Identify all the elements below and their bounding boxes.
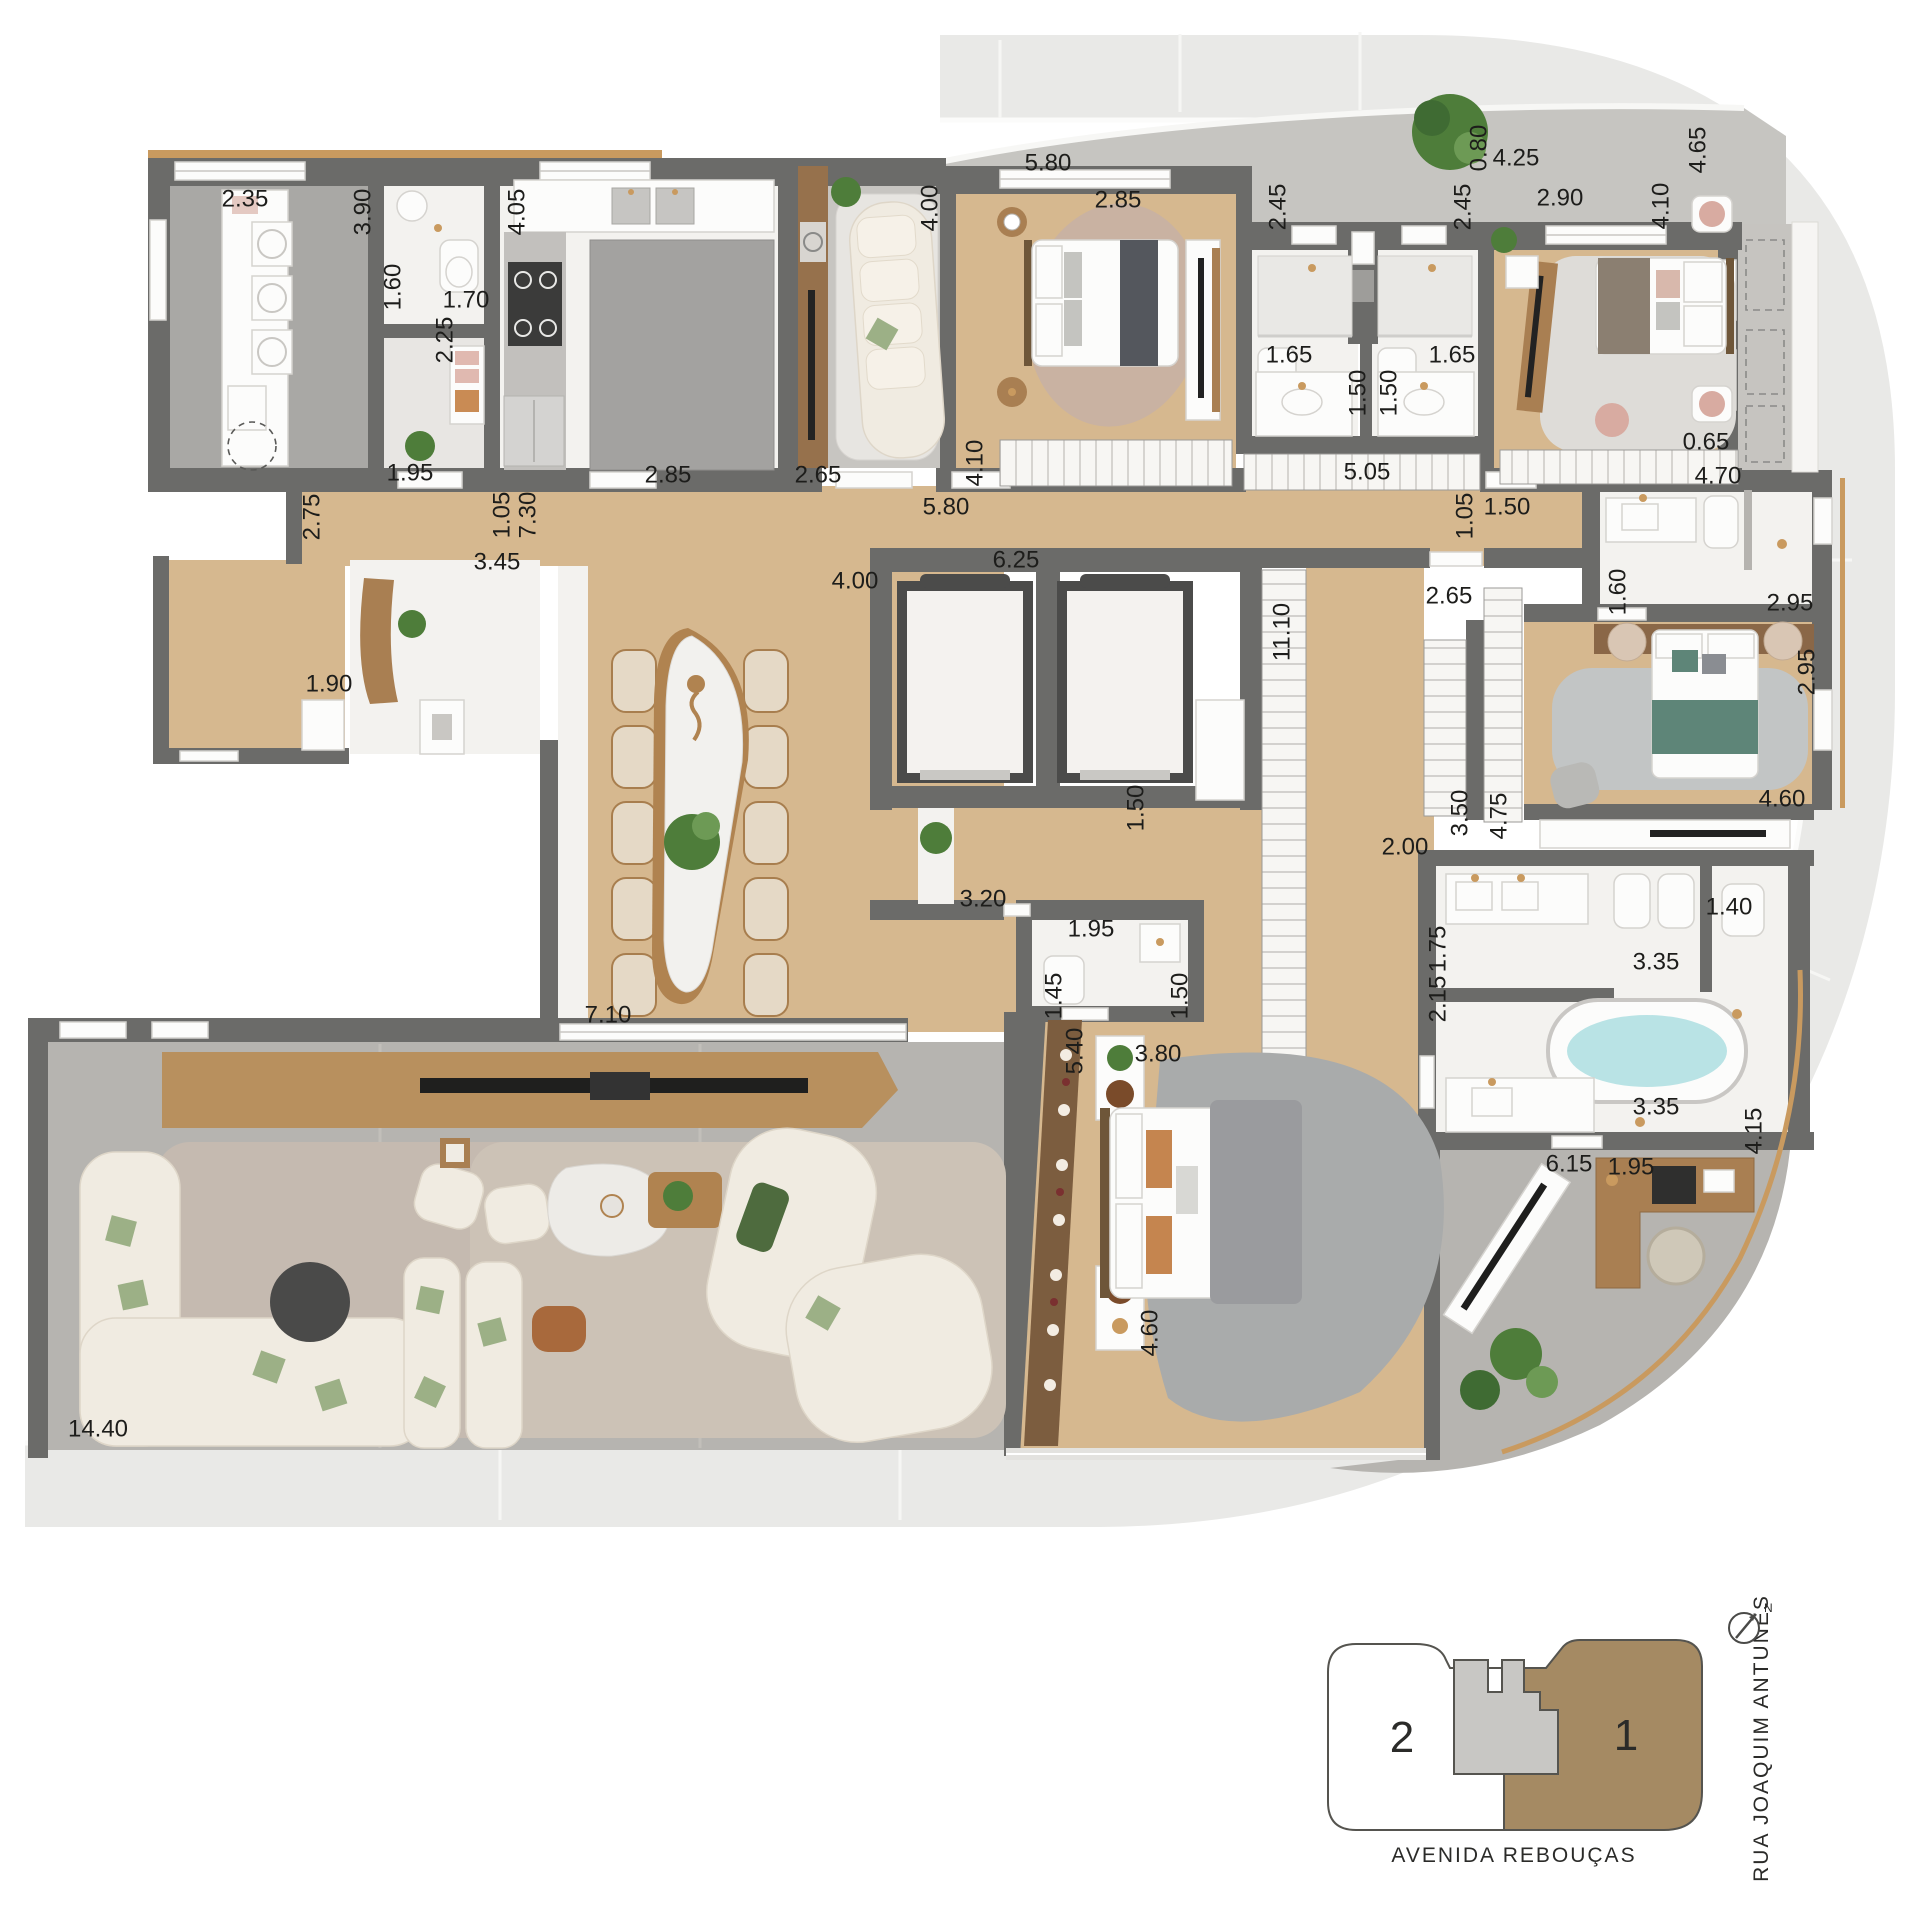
dimension-label: 1.65: [1266, 341, 1313, 368]
dimension-label: 6.15: [1546, 1150, 1593, 1177]
wc-toilet: [440, 240, 478, 292]
dimension-label: 4.15: [1740, 1108, 1767, 1155]
dark-ottoman: [270, 1262, 350, 1342]
nightstand: [1506, 256, 1538, 288]
dimension-label: 2.65: [1426, 582, 1473, 609]
dimension-label: 5.80: [1025, 149, 1072, 176]
dimension-label: 2.95: [1767, 589, 1814, 616]
core-niche: [1196, 700, 1244, 800]
dimension-label: 1.45: [1040, 973, 1067, 1020]
plant-icon: [1107, 1045, 1133, 1071]
plant-icon: [398, 610, 426, 638]
dimension-label: 7.30: [514, 492, 541, 539]
dimension-label: 5.80: [923, 493, 970, 520]
dimension-label: 4.10: [1647, 183, 1674, 230]
corridor-floor: [1306, 566, 1424, 816]
dimension-label: 1.60: [379, 264, 406, 311]
dimension-label: 2.45: [1264, 184, 1291, 231]
dimension-label: 1.50: [1484, 493, 1531, 520]
dimension-label: 1.50: [1375, 370, 1402, 417]
dimension-label: 1.40: [1706, 893, 1753, 920]
plant-icon: [1491, 227, 1517, 253]
laundry-room: [222, 190, 292, 470]
bedroom1-wardrobe: [1000, 440, 1232, 486]
elevator-2: [1062, 586, 1188, 778]
dimension-label: 4.60: [1759, 785, 1806, 812]
laptop: [1652, 1166, 1696, 1204]
dimension-label: 4.70: [1695, 462, 1742, 489]
dimension-label: 3.50: [1446, 790, 1473, 837]
wc-sink: [397, 191, 427, 221]
dimension-label: 14.40: [68, 1415, 128, 1442]
dimension-label: 1.50: [1344, 370, 1371, 417]
plant-icon: [920, 822, 952, 854]
dimension-label: 2.75: [298, 494, 325, 541]
vanity: [1446, 1078, 1594, 1132]
dining: [612, 628, 788, 1016]
dimension-label: 2.85: [1095, 186, 1142, 213]
dimension-label: 2.85: [645, 461, 692, 488]
dimension-label: 4.00: [916, 185, 943, 232]
marble-strip: [558, 566, 588, 1022]
dimension-label: 3.80: [1135, 1040, 1182, 1067]
living-terrace: [80, 1052, 1006, 1452]
dimension-label: 5.40: [1061, 1028, 1088, 1075]
plant-icon: [663, 1181, 693, 1211]
kitchen: [504, 180, 774, 470]
dimension-label: 4.00: [832, 567, 879, 594]
dimension-label: 4.10: [961, 440, 988, 487]
sectional-sofa: [80, 1318, 426, 1446]
dimension-label: 1.95: [1068, 915, 1115, 942]
tv-screen: [808, 290, 815, 440]
dimension-label: 0.65: [1683, 428, 1730, 455]
dimension-label: 1.90: [306, 670, 353, 697]
key-plan: 2 1 AVENIDA REBOUÇAS RUA JOAQUIM ANTUNES…: [1328, 1594, 1773, 1882]
dimension-label: 1.50: [1122, 785, 1149, 832]
ottoman: [1699, 391, 1725, 417]
floor-plan-drawing: 2.353.904.051.601.702.251.952.852.751.05…: [0, 0, 1920, 1920]
ottoman: [1699, 201, 1725, 227]
keyplan-unit1-label: 1: [1614, 1711, 1638, 1760]
floor-plan-page: 2.353.904.051.601.702.251.952.852.751.05…: [0, 0, 1920, 1920]
dimension-label: 2.65: [795, 461, 842, 488]
dimension-label: 3.90: [349, 189, 376, 236]
dimension-label: 3.45: [474, 548, 521, 575]
laundry-sink: [228, 386, 266, 430]
dimension-label: 4.65: [1684, 127, 1711, 174]
bed-throw: [1598, 258, 1650, 354]
plant-icon: [831, 177, 861, 207]
pouf: [1595, 403, 1629, 437]
plant-icon: [405, 431, 435, 461]
leather-pouf: [532, 1306, 586, 1352]
street-label-bottom: AVENIDA REBOUÇAS: [1391, 1844, 1636, 1867]
dimension-label: 4.75: [1485, 793, 1512, 840]
dimension-label: 3.35: [1633, 948, 1680, 975]
dimension-label: 1.95: [1608, 1153, 1655, 1180]
dimension-label: 1.95: [387, 459, 434, 486]
tv-screen: [1650, 830, 1766, 837]
closet-475: [1484, 588, 1522, 822]
keyplan-unit2-label: 2: [1390, 1713, 1414, 1762]
closet-350: [1424, 640, 1466, 816]
dimension-label: 1.60: [1604, 569, 1631, 616]
sofa: [404, 1258, 460, 1448]
dimension-label: 1.70: [443, 286, 490, 313]
dimension-label: 11.10: [1268, 603, 1295, 661]
dimension-label: 2.15: [1424, 976, 1451, 1023]
stool: [1608, 623, 1646, 661]
dimension-label: 1.75: [1424, 926, 1451, 973]
shower-head: [1777, 539, 1787, 549]
elevator-1: [902, 586, 1028, 778]
dimension-label: 0.80: [1465, 125, 1492, 172]
dimension-label: 4.25: [1493, 144, 1540, 171]
dimension-label: 4.60: [1136, 1310, 1163, 1357]
dimension-label: 1.05: [488, 492, 515, 539]
dimension-label: 6.25: [993, 546, 1040, 573]
bench: [302, 700, 344, 750]
dimension-label: 2.45: [1449, 184, 1476, 231]
vanity: [1256, 372, 1352, 436]
kitchen-island: [590, 240, 774, 470]
bed-blanket: [1210, 1100, 1302, 1304]
bed-blanket: [1120, 240, 1158, 366]
toilet: [1658, 874, 1694, 928]
north-label: N: [1764, 1601, 1773, 1615]
toilet: [1704, 496, 1738, 548]
dimension-label: 3.35: [1633, 1093, 1680, 1120]
dimension-label: 2.25: [431, 317, 458, 364]
green-blanket: [1652, 700, 1758, 754]
sofa: [466, 1262, 522, 1448]
dimension-label: 3.20: [960, 885, 1007, 912]
office-chair: [1648, 1228, 1704, 1284]
dimension-label: 7.10: [585, 1001, 632, 1028]
dimension-label: 2.35: [222, 185, 269, 212]
dimension-label: 1.65: [1429, 341, 1476, 368]
dimension-label: 1.05: [1451, 493, 1478, 540]
dimension-label: 2.95: [1793, 649, 1820, 696]
dimension-label: 5.05: [1344, 458, 1391, 485]
dimension-label: 2.90: [1537, 184, 1584, 211]
bath-water: [1567, 1015, 1727, 1087]
gold-trim-top: [148, 150, 662, 158]
dimension-label: 4.05: [503, 189, 530, 236]
armchair: [482, 1182, 551, 1246]
dimension-label: 2.00: [1382, 833, 1429, 860]
bidet: [1614, 874, 1650, 928]
dimension-label: 1.50: [1166, 973, 1193, 1020]
